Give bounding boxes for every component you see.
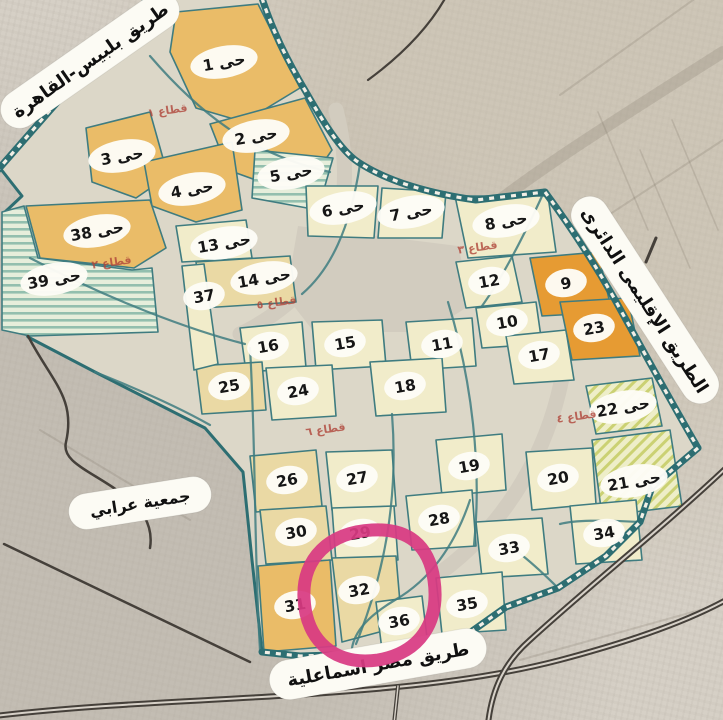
svg-text:32: 32 xyxy=(347,580,371,601)
svg-text:35: 35 xyxy=(455,594,479,615)
south-west-road xyxy=(4,544,250,662)
svg-text:19: 19 xyxy=(457,456,481,477)
north-east-road xyxy=(368,0,447,80)
svg-text:15: 15 xyxy=(333,333,357,354)
svg-text:25: 25 xyxy=(217,376,241,397)
map-canvas: حى 1حى 2حى 3حى 4حى 5حى 6حى 7حى 89101112ح… xyxy=(0,0,723,720)
svg-text:11: 11 xyxy=(430,334,454,355)
svg-text:24: 24 xyxy=(286,381,311,403)
svg-text:34: 34 xyxy=(592,523,617,545)
svg-text:20: 20 xyxy=(546,468,571,490)
svg-text:10: 10 xyxy=(495,312,520,334)
svg-text:27: 27 xyxy=(345,468,369,489)
svg-text:30: 30 xyxy=(284,522,309,544)
svg-text:12: 12 xyxy=(477,271,501,292)
svg-text:28: 28 xyxy=(427,509,451,530)
svg-text:16: 16 xyxy=(256,336,280,357)
svg-text:18: 18 xyxy=(393,376,417,397)
svg-text:26: 26 xyxy=(275,470,299,491)
svg-text:33: 33 xyxy=(497,538,521,559)
svg-text:36: 36 xyxy=(387,611,411,632)
svg-text:23: 23 xyxy=(582,318,606,339)
svg-text:17: 17 xyxy=(527,345,551,366)
svg-text:37: 37 xyxy=(192,286,216,307)
city-districts-map: حى 1حى 2حى 3حى 4حى 5حى 6حى 7حى 89101112ح… xyxy=(0,0,723,720)
area-label-orabi-association: جمعية عرابي xyxy=(66,474,214,532)
